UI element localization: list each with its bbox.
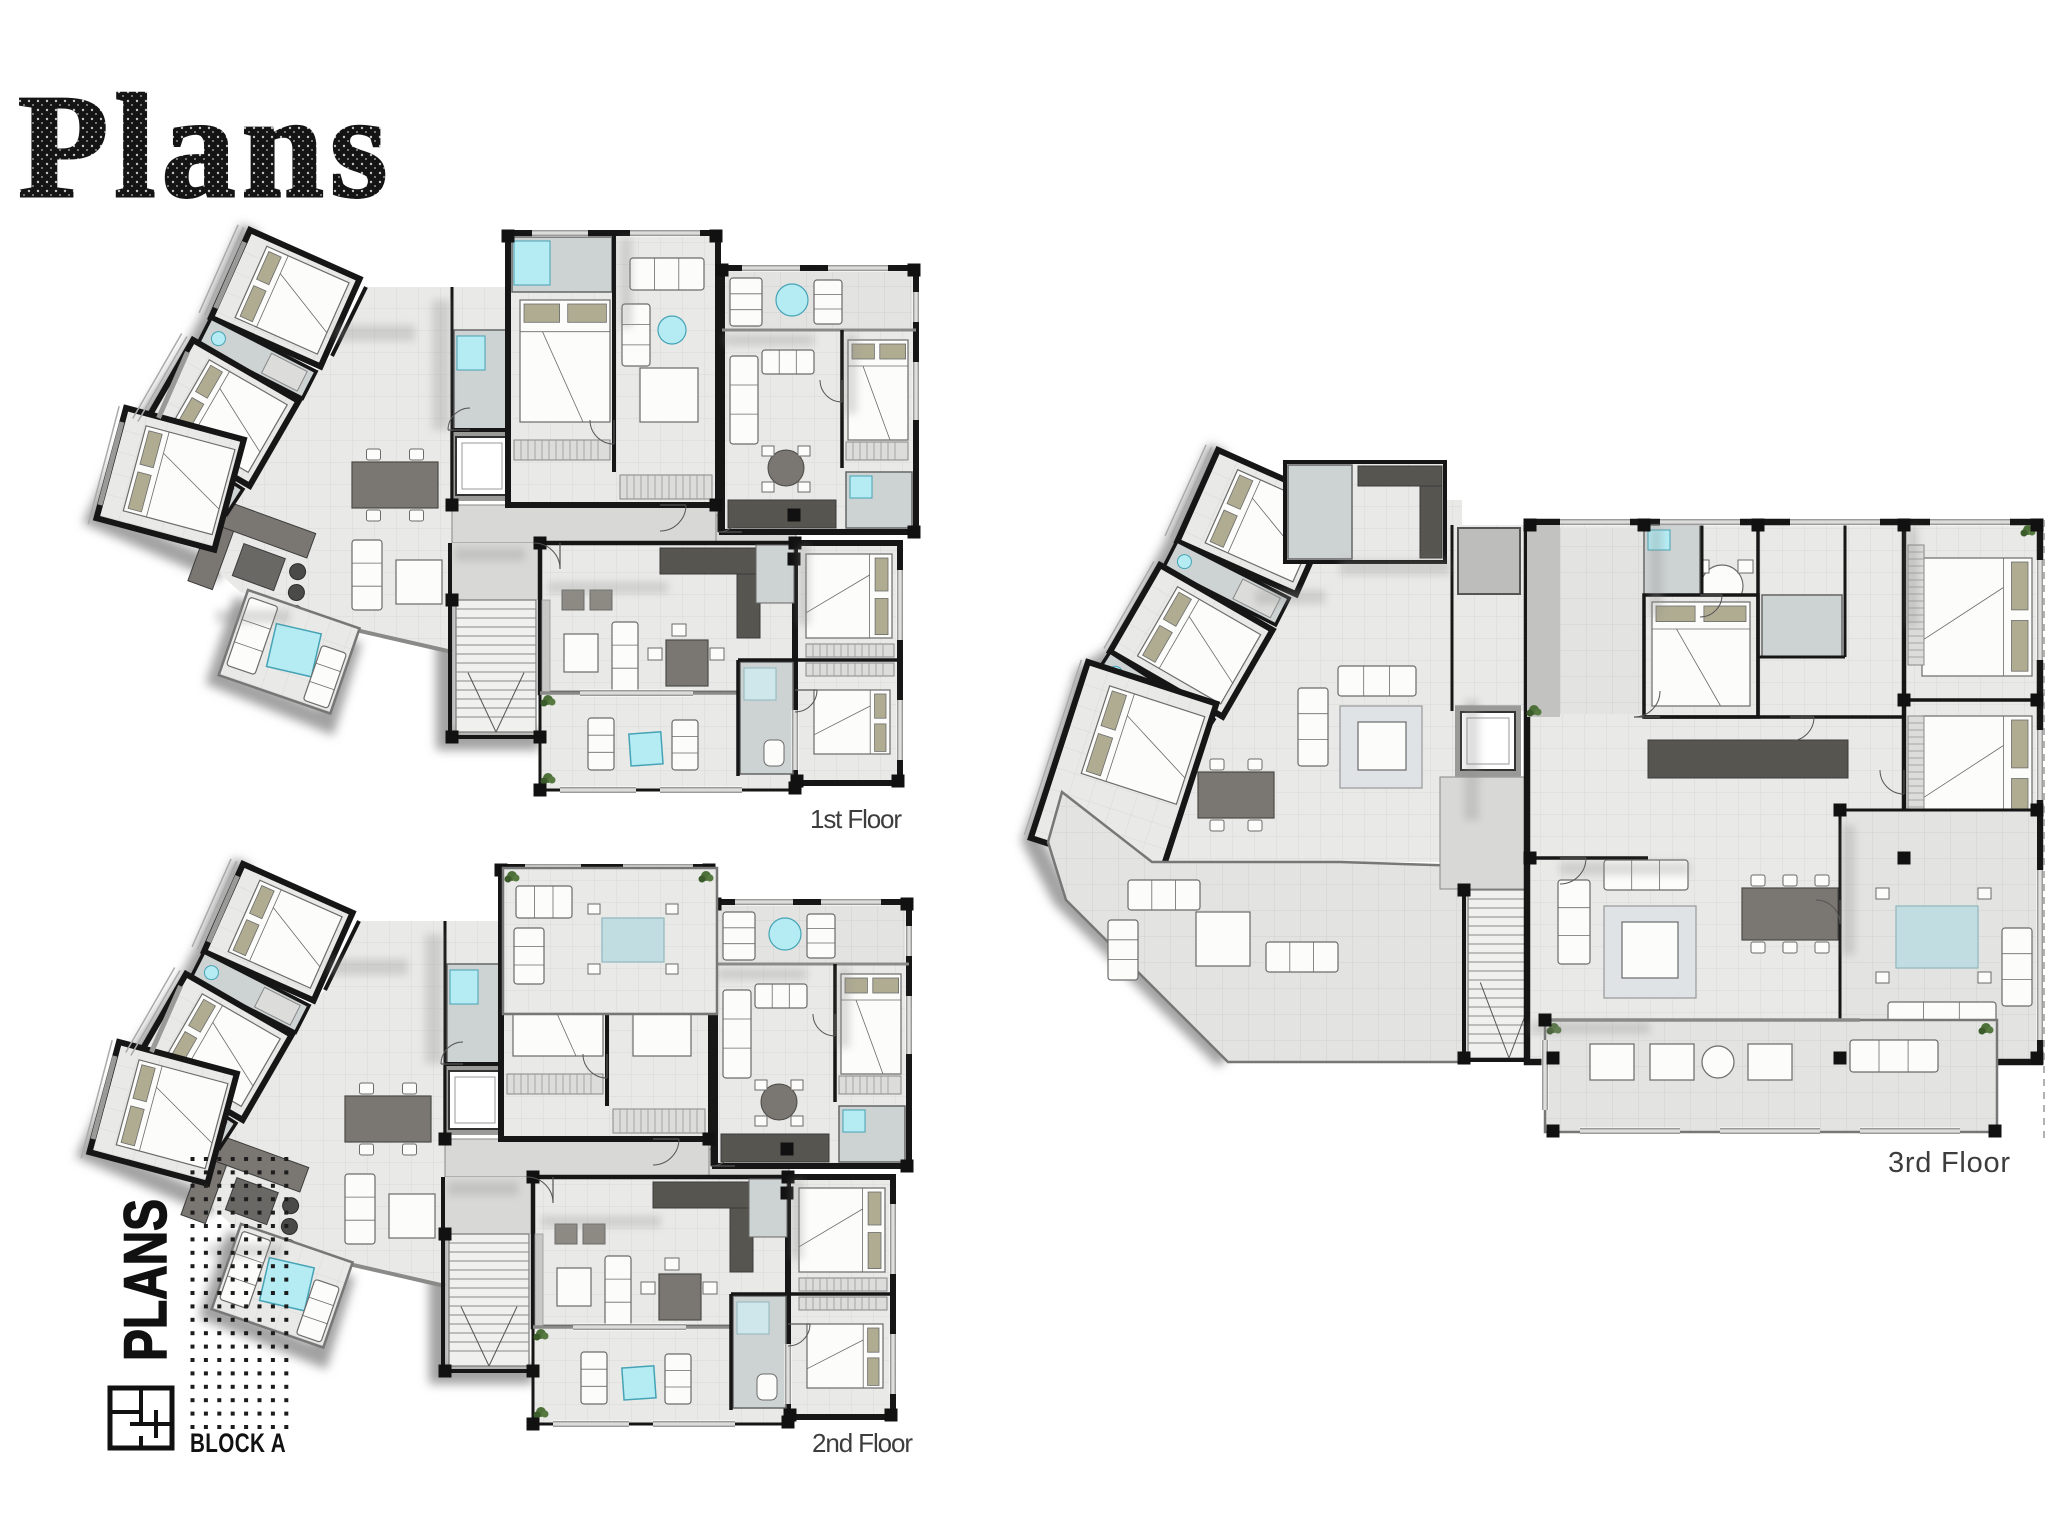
svg-text:PLANS: PLANS <box>112 1199 179 1361</box>
svg-text:2nd Floor: 2nd Floor <box>812 1428 914 1458</box>
svg-text:BLOCK A: BLOCK A <box>190 1428 286 1458</box>
svg-text:1st Floor: 1st Floor <box>810 804 903 834</box>
svg-text:3rd Floor: 3rd Floor <box>1888 1147 2011 1179</box>
